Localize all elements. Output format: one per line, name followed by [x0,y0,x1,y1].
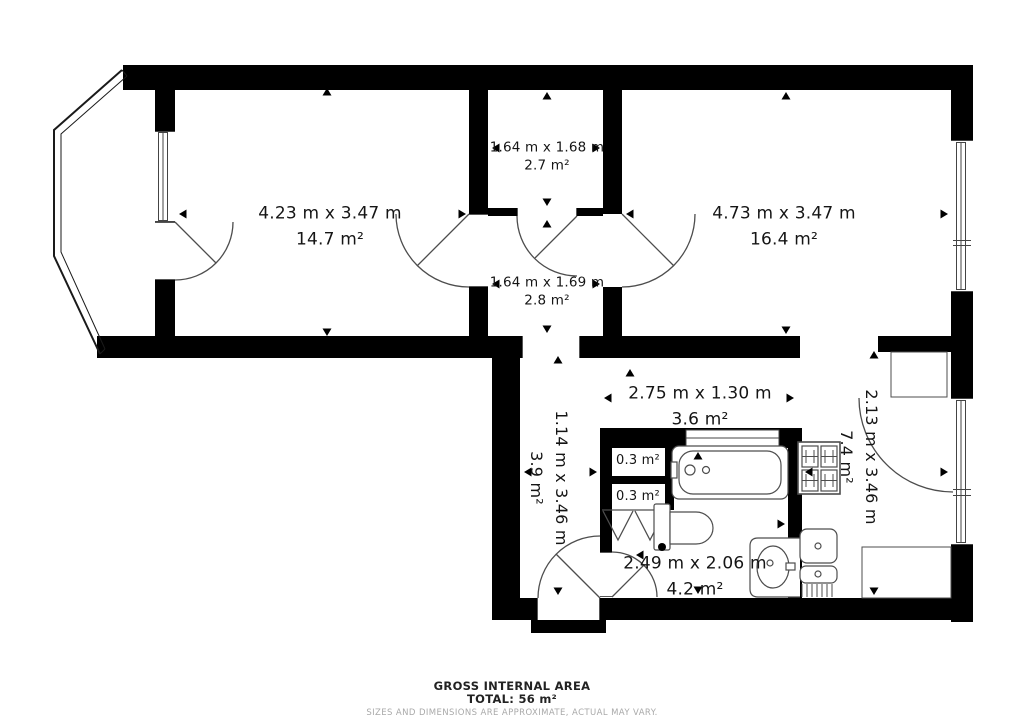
room-dims: 2.49 m x 2.06 m [623,551,767,577]
floor-plan: 4.23 m x 3.47 m 14.7 m² 1.64 m x 1.68 m … [0,0,1024,725]
room-area: 4.2 m² [623,577,767,603]
room-label-bathroom: 2.49 m x 2.06 m 4.2 m² [623,551,767,604]
room-area: 2.7 m² [490,157,605,175]
kitchen-sink [800,529,837,597]
room-label-hallway: 2.75 m x 1.30 m 3.6 m² [628,381,772,434]
room-label-bedroom-left: 4.23 m x 3.47 m 14.7 m² [258,201,402,254]
room-area: 7.4 m² [833,389,858,524]
toilet [654,504,713,551]
room-area: 0.3 m² [616,451,660,471]
room-label-inner-hall: 1.64 m x 1.69 m 2.8 m² [490,274,605,309]
window-bedroom-left [155,131,175,222]
fridge [891,352,947,397]
door-bedroom-left [396,214,469,287]
room-dims: 4.23 m x 3.47 m [258,201,402,227]
footer-disclaimer: SIZES AND DIMENSIONS ARE APPROXIMATE, AC… [0,708,1024,718]
room-label-hallway-lower: 1.14 m x 3.46 m 3.9 m² [523,410,573,545]
room-dims: 4.73 m x 3.47 m [712,201,856,227]
bay-window [54,70,127,354]
room-dims: 1.64 m x 1.68 m [490,139,605,157]
door-bedroom-right [622,214,695,287]
room-area: 3.9 m² [523,410,548,545]
door-bay [175,222,233,280]
room-label-storage-top: 1.64 m x 1.68 m 2.7 m² [490,139,605,174]
room-label-closet-2: 0.3 m² [616,487,660,507]
room-area: 16.4 m² [712,227,856,253]
room-dims: 2.13 m x 3.46 m [858,389,883,524]
room-area: 14.7 m² [258,227,402,253]
floor-plan-drawing [0,0,1024,725]
bathtub [671,446,788,499]
room-area: 2.8 m² [490,292,605,310]
room-label-closet-1: 0.3 m² [616,451,660,471]
room-dims: 2.75 m x 1.30 m [628,381,772,407]
window-kitchen-balcony [951,398,973,545]
footer-total: TOTAL: 56 m² [0,693,1024,706]
room-dims: 1.14 m x 3.46 m [548,410,573,545]
room-area: 3.6 m² [628,407,772,433]
room-label-bedroom-right: 4.73 m x 3.47 m 16.4 m² [712,201,856,254]
entrance-step [531,620,606,633]
room-label-kitchen: 2.13 m x 3.46 m 7.4 m² [833,389,883,524]
plan-footer: GROSS INTERNAL AREA TOTAL: 56 m² SIZES A… [0,680,1024,718]
room-dims: 1.64 m x 1.69 m [490,274,605,292]
window-bedroom-right [951,140,973,292]
room-area: 0.3 m² [616,487,660,507]
